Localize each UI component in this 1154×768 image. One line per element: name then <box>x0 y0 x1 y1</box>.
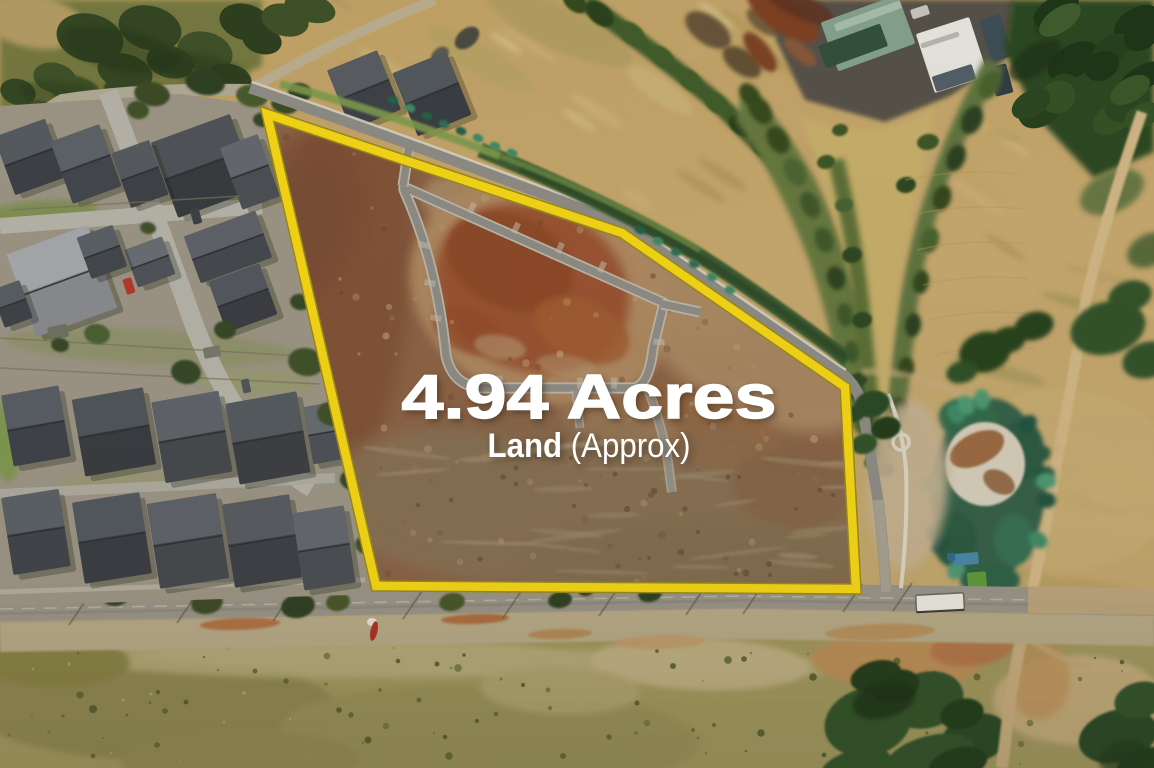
svg-text:4.94 Acres: 4.94 Acres <box>402 363 777 432</box>
svg-text:Land (Approx): Land (Approx) <box>488 427 691 465</box>
